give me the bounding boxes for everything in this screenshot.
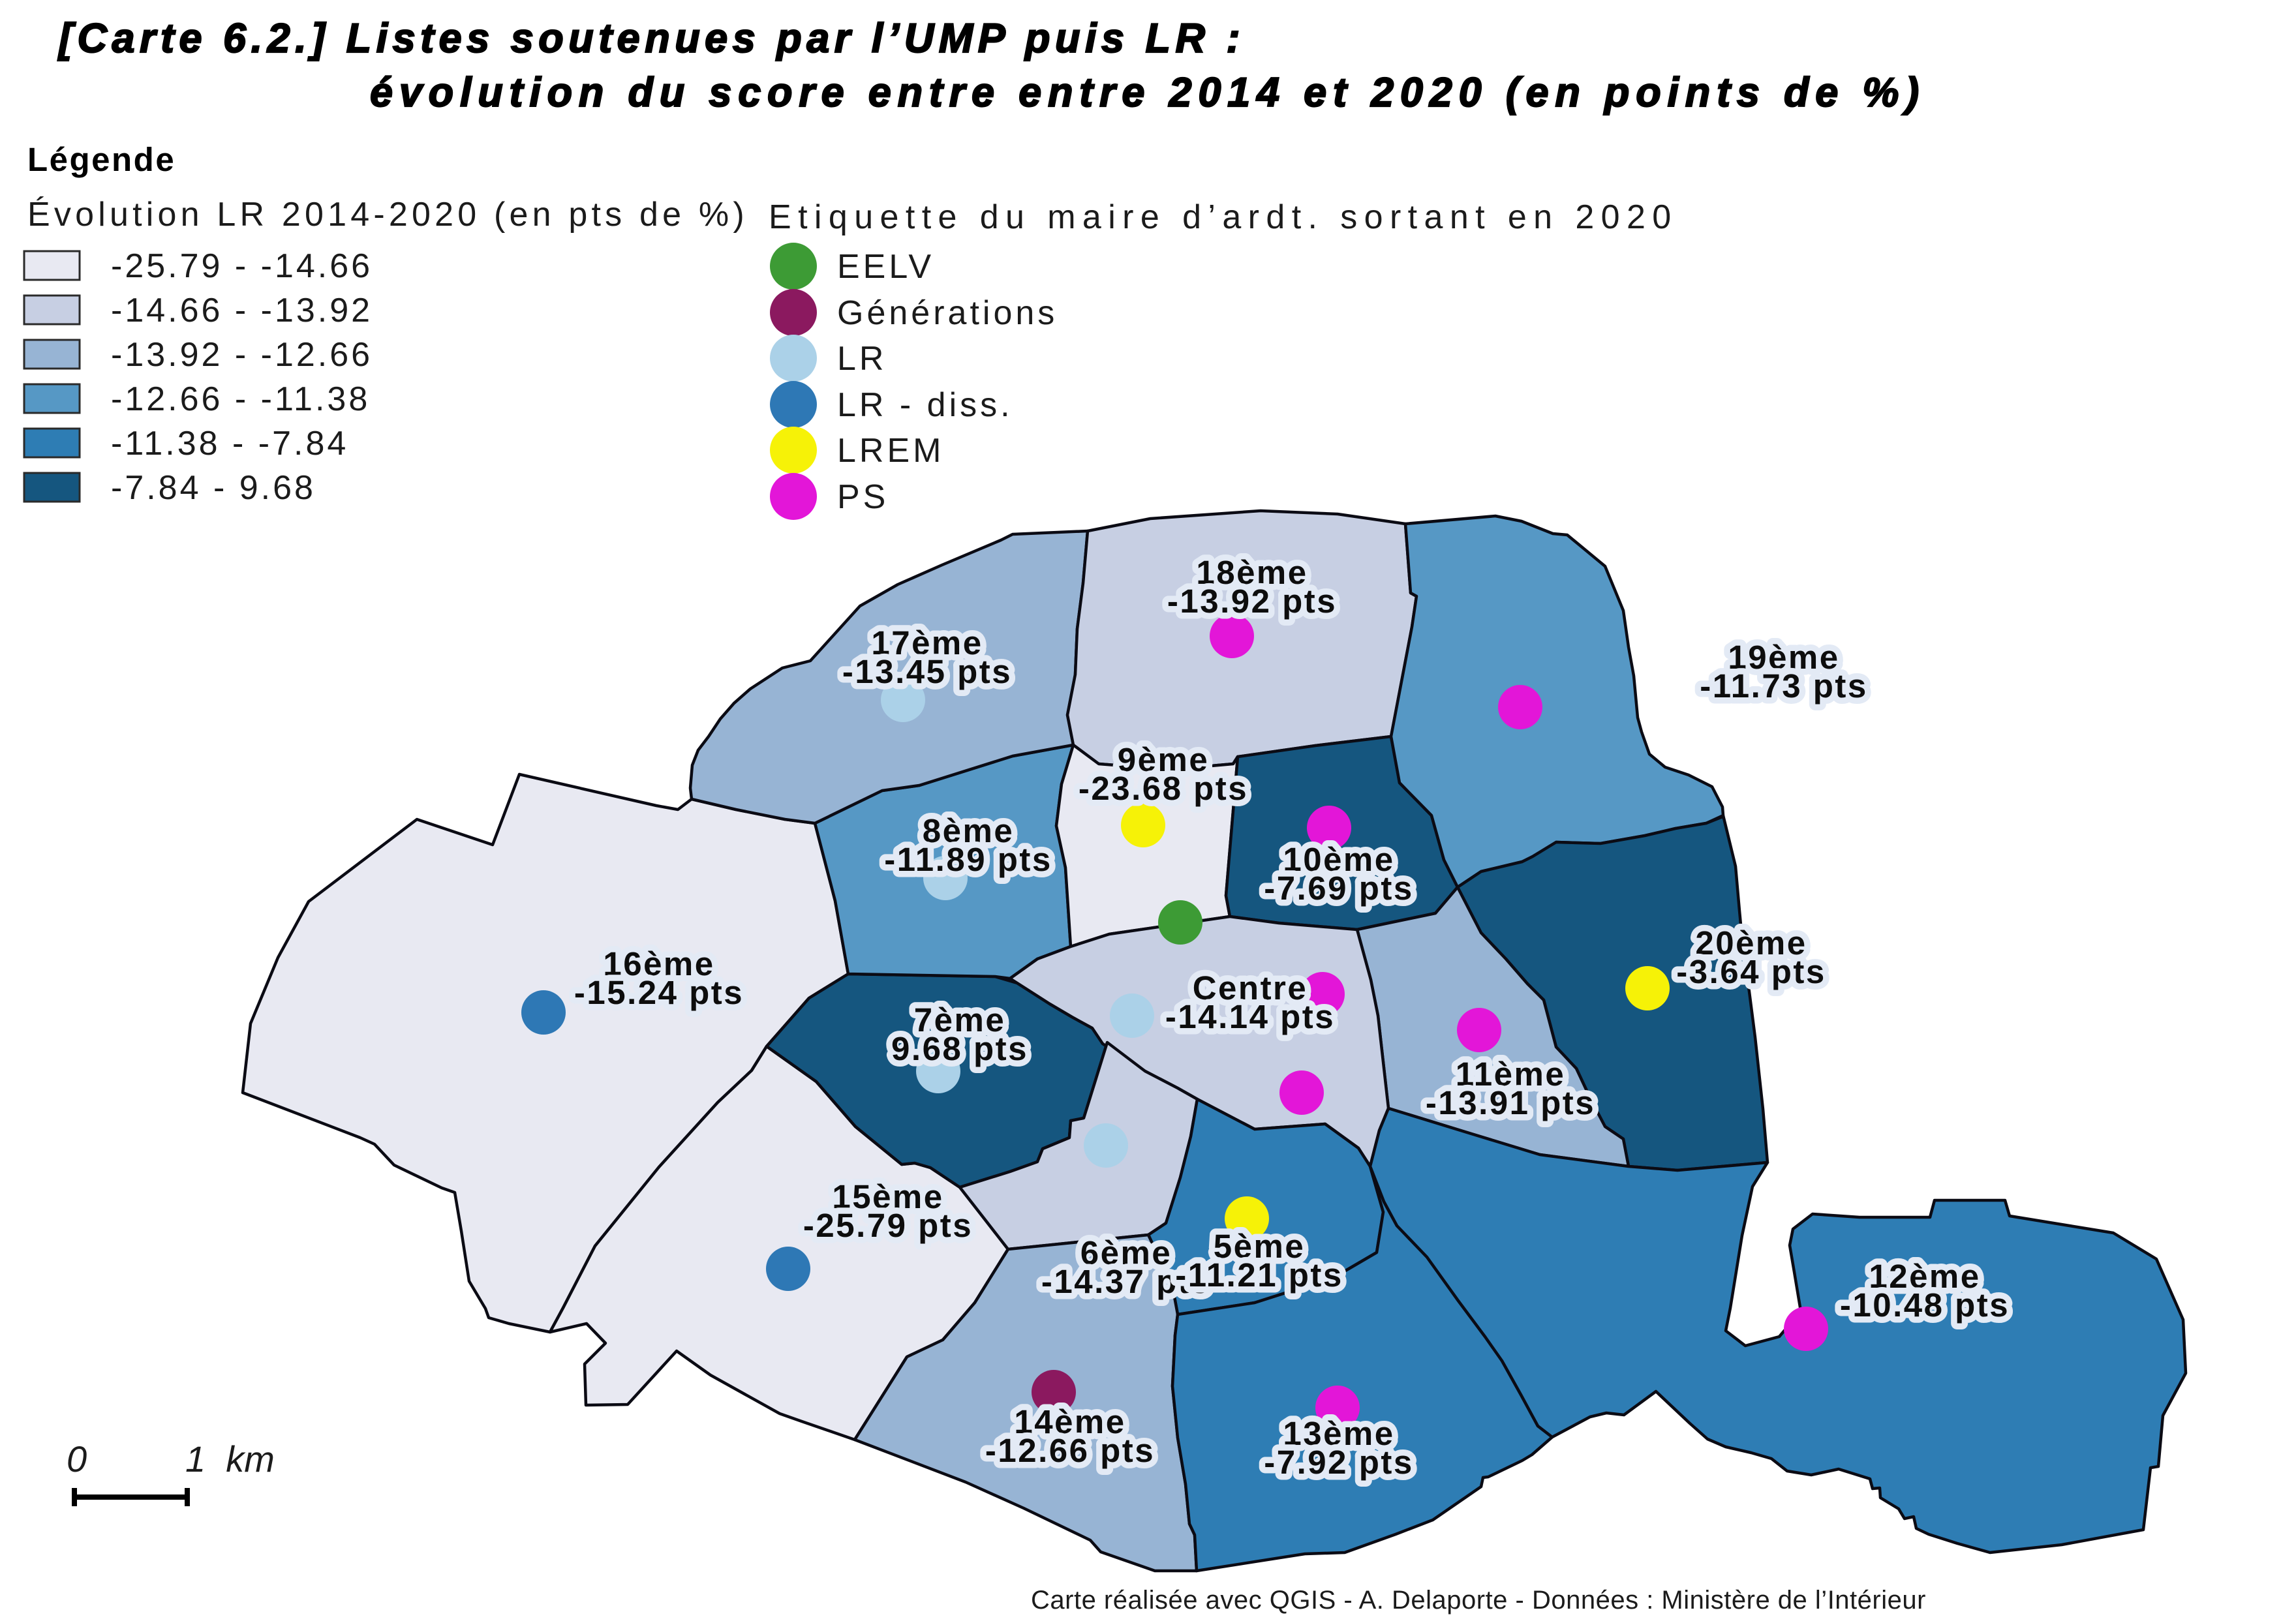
svg-text:PS: PS	[837, 478, 889, 516]
svg-text:-13.92 pts: -13.92 pts	[1167, 583, 1337, 620]
svg-text:Générations: Générations	[837, 294, 1058, 332]
svg-text:-11.21 pts: -11.21 pts	[1175, 1256, 1343, 1294]
svg-text:-7.92 pts: -7.92 pts	[1264, 1444, 1413, 1481]
svg-text:-15.24 pts: -15.24 pts	[574, 974, 744, 1011]
svg-text:-11.38 - -7.84: -11.38 - -7.84	[111, 425, 348, 463]
svg-text:9.68 pts: 9.68 pts	[891, 1030, 1028, 1067]
svg-text:-13.45 pts: -13.45 pts	[842, 653, 1012, 690]
svg-text:-12.66 pts: -12.66 pts	[985, 1432, 1155, 1469]
svg-text:-23.68 pts: -23.68 pts	[1079, 770, 1248, 807]
svg-text:-14.66 - -13.92: -14.66 - -13.92	[111, 292, 373, 329]
svg-text:1 km: 1 km	[185, 1438, 275, 1479]
svg-text:LR - diss.: LR - diss.	[837, 386, 1013, 424]
svg-text:-13.92 - -12.66: -13.92 - -12.66	[111, 336, 373, 374]
svg-text:[Carte 6.2.] Listes soutenues: [Carte 6.2.] Listes soutenues par l’UMP …	[57, 16, 1245, 61]
svg-text:-11.89 pts: -11.89 pts	[884, 841, 1052, 878]
svg-text:Etiquette du maire d’ardt. sor: Etiquette du maire d’ardt. sortant en 20…	[769, 198, 1678, 236]
svg-text:-13.91 pts: -13.91 pts	[1426, 1084, 1595, 1121]
svg-text:-10.48 pts: -10.48 pts	[1840, 1286, 2010, 1324]
svg-text:-25.79 - -14.66: -25.79 - -14.66	[111, 247, 373, 285]
svg-text:-3.64 pts: -3.64 pts	[1676, 953, 1826, 990]
svg-text:évolution du score entre entre: évolution du score entre entre 2014 et 2…	[370, 70, 1925, 115]
svg-text:-12.66 - -11.38: -12.66 - -11.38	[111, 380, 370, 418]
svg-text:-25.79 pts: -25.79 pts	[803, 1207, 973, 1244]
svg-text:Évolution LR 2014-2020 (en pts: Évolution LR 2014-2020 (en pts de %)	[27, 196, 748, 234]
svg-text:LREM: LREM	[837, 432, 944, 470]
svg-text:LR: LR	[837, 340, 887, 378]
svg-text:EELV: EELV	[837, 248, 934, 286]
svg-text:Carte réalisée avec QGIS - A.: Carte réalisée avec QGIS - A. Delaporte …	[1031, 1586, 1926, 1615]
svg-text:0: 0	[67, 1438, 87, 1479]
svg-text:-7.69 pts: -7.69 pts	[1264, 870, 1413, 907]
svg-text:Légende: Légende	[27, 141, 176, 178]
svg-text:-7.84 - 9.68: -7.84 - 9.68	[111, 469, 316, 507]
svg-text:-11.73 pts: -11.73 pts	[1700, 667, 1867, 705]
svg-text:-14.14 pts: -14.14 pts	[1165, 998, 1335, 1035]
